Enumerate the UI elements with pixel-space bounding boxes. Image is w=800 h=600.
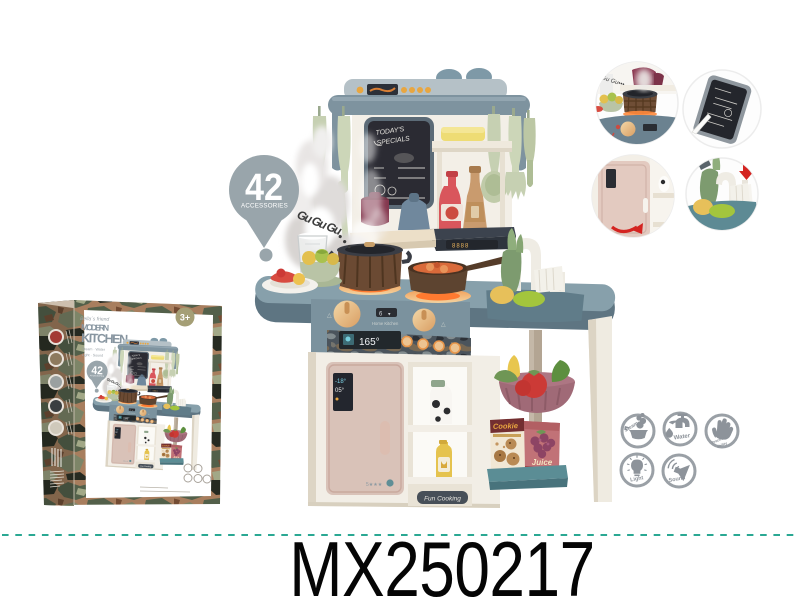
svg-text:Cookie: Cookie <box>493 421 518 431</box>
svg-text:Home Kitchen: Home Kitchen <box>372 321 399 326</box>
svg-text:5★★★: 5★★★ <box>366 482 383 488</box>
svg-text:8888: 8888 <box>452 244 469 250</box>
svg-text:Steam · Water: Steam · Water <box>82 347 106 352</box>
svg-text:Light · Sound: Light · Sound <box>82 353 104 358</box>
svg-text:05°: 05° <box>335 388 345 394</box>
svg-text:Fun Cooking: Fun Cooking <box>424 496 461 503</box>
svg-text:△: △ <box>441 322 446 328</box>
svg-text:-18°: -18° <box>335 379 347 385</box>
svg-text:3+: 3+ <box>180 313 190 323</box>
svg-text:Juice: Juice <box>532 458 553 467</box>
svg-text:△: △ <box>327 313 332 319</box>
svg-text:ACCESSORIES: ACCESSORIES <box>241 203 288 210</box>
svg-text:MX250217: MX250217 <box>289 526 595 600</box>
svg-text:165°: 165° <box>359 337 380 348</box>
